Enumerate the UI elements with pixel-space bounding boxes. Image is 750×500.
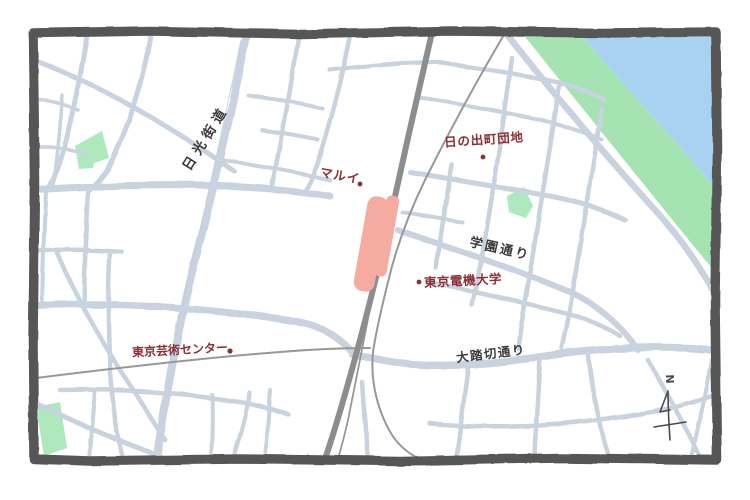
poi-label-tokyo-denki-university: 東京電機大学 [424,271,503,290]
poi-label-marui: マルイ [319,165,362,187]
river-area [518,28,740,300]
map-svg: 日光街道 マルイ 日の出町団地 学園通り 東京電機大学 東京芸術センター 大踏切… [0,0,750,500]
poi-dot-hinodecho-danchi [481,155,486,160]
hand-drawn-map-canvas: 日光街道 マルイ 日の出町団地 学園通り 東京電機大学 東京芸術センター 大踏切… [0,0,750,500]
park-upper-left [75,131,109,169]
poi-dot-tokyo-geijutsu-center [227,348,232,353]
compass-north-label: N [663,374,676,384]
poi-dot-tokyo-denki-university [417,280,422,285]
poi-label-tokyo-geijutsu-center: 東京芸術センター [132,339,229,359]
poi-label-hinodecho-danchi: 日の出町団地 [444,129,525,150]
poi-dot-marui [358,182,363,187]
